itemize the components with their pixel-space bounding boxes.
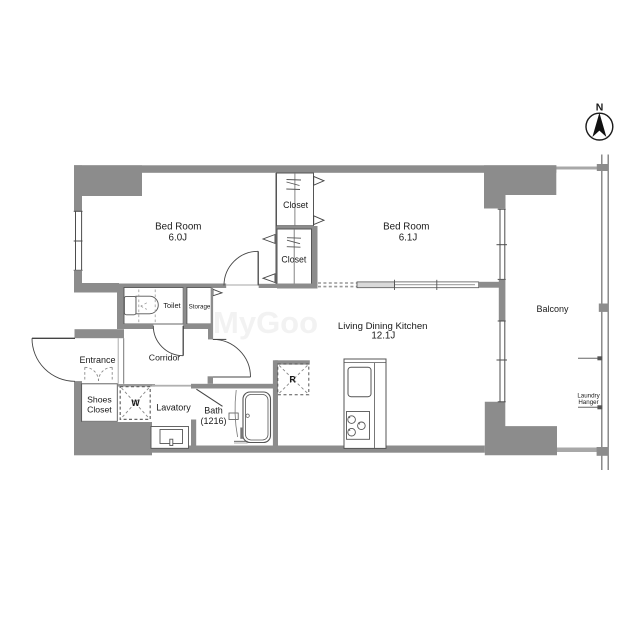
svg-text:Balcony: Balcony	[536, 304, 569, 314]
svg-text:Shoes: Shoes	[87, 395, 112, 405]
svg-text:Entrance: Entrance	[79, 355, 115, 365]
svg-text:Closet: Closet	[283, 200, 308, 210]
svg-text:Bed Room: Bed Room	[155, 222, 201, 233]
svg-text:12.1J: 12.1J	[371, 331, 395, 342]
svg-text:Bath: Bath	[204, 406, 223, 416]
svg-text:Corridor: Corridor	[149, 353, 180, 363]
svg-text:Lavatory: Lavatory	[156, 402, 191, 412]
svg-text:Hanger: Hanger	[578, 399, 598, 406]
svg-text:Toilet: Toilet	[163, 301, 180, 310]
svg-text:W: W	[131, 398, 140, 408]
svg-text:MyGoo: MyGoo	[213, 305, 318, 340]
svg-text:6.1J: 6.1J	[399, 233, 418, 244]
svg-text:R: R	[289, 375, 296, 385]
svg-text:Closet: Closet	[87, 405, 112, 415]
svg-text:Storage: Storage	[189, 304, 211, 311]
svg-text:N: N	[596, 102, 604, 114]
svg-text:Closet: Closet	[281, 255, 306, 265]
svg-text:(1216): (1216)	[200, 416, 226, 426]
svg-text:6.0J: 6.0J	[169, 233, 188, 244]
svg-text:Bed Room: Bed Room	[383, 222, 429, 233]
